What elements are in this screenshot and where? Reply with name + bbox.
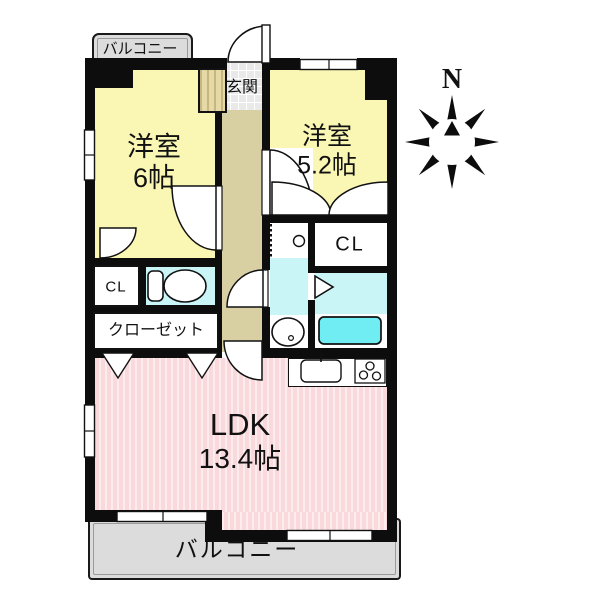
wall-wash-bath-upper xyxy=(308,223,315,272)
window-ldk-west xyxy=(85,405,95,457)
compass-rose-icon xyxy=(405,95,499,189)
wall-right xyxy=(387,58,397,542)
room-west-name: 洋室 xyxy=(127,132,181,163)
ldk-floor-lower-step xyxy=(218,512,387,531)
shoe-cabinet xyxy=(198,68,227,113)
ldk-label: LDK 13.4帖 xyxy=(199,407,282,475)
wall-bottom-west xyxy=(85,510,217,522)
balcony-bottom-label: バルコニー xyxy=(175,536,300,562)
ldk-name: LDK xyxy=(199,407,282,443)
kitchen-counter xyxy=(288,358,387,387)
wall-hall-east-upper xyxy=(262,62,270,150)
washroom-vanity-zone xyxy=(270,315,308,348)
compass-north-label: N xyxy=(442,64,462,96)
floor-plan: バルコニー 玄関 洋室 6帖 洋室 5.2帖 CL CL クローゼット LDK … xyxy=(0,0,600,600)
window-east-room-top xyxy=(300,60,357,70)
closet-long-label: クローゼット xyxy=(108,322,204,340)
wall-left-1 xyxy=(85,58,95,130)
room-east-label: 洋室 5.2帖 xyxy=(297,122,357,180)
toilet-room-floor xyxy=(146,267,215,305)
room-west-label: 洋室 6帖 xyxy=(127,132,181,194)
wall-hall-east-mid xyxy=(262,215,270,270)
entrance-label: 玄関 xyxy=(226,79,258,97)
entrance-door xyxy=(228,25,270,63)
bathtub-zone xyxy=(315,314,387,348)
room-east-name: 洋室 xyxy=(297,122,357,151)
bathroom-floor xyxy=(315,273,387,314)
room-east-size: 5.2帖 xyxy=(297,151,357,180)
wall-hall-east-lower xyxy=(262,307,270,352)
washroom-washer-space xyxy=(270,223,308,258)
window-west-room xyxy=(85,130,95,180)
washroom-floor xyxy=(270,258,308,315)
wall-ldk-top-east xyxy=(262,348,397,358)
closet-small-west-label: CL xyxy=(105,278,126,295)
ldk-size: 13.4帖 xyxy=(199,443,282,475)
room-west-size: 6帖 xyxy=(127,163,181,194)
wall-wash-bath-lower xyxy=(308,300,315,352)
wall-roomeast-bottom xyxy=(262,215,397,223)
balcony-top-label: バルコニー xyxy=(103,40,178,57)
closet-small-east-label: CL xyxy=(335,234,365,257)
wall-top-mid xyxy=(268,58,300,70)
hallway-floor xyxy=(222,108,262,352)
wall-cl-bath xyxy=(308,266,397,273)
